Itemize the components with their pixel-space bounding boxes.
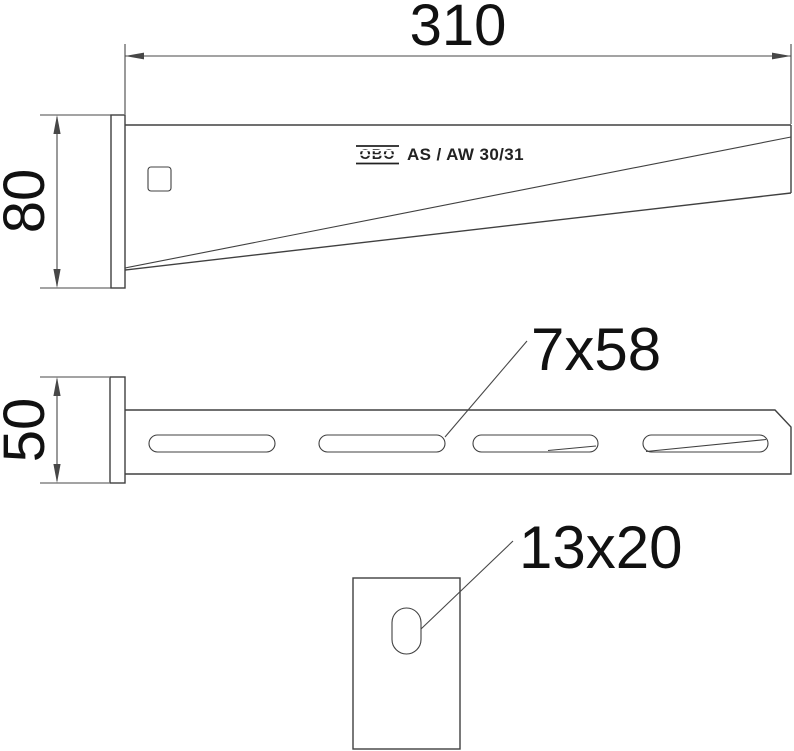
square-hole <box>148 167 171 191</box>
wall-plate-plan <box>110 377 125 483</box>
mounting-slot <box>319 435 445 452</box>
bracket-drawing: 310 80 OBO <box>0 0 794 751</box>
product-label: OBO AS / AW 30/31 <box>356 145 524 164</box>
dim-50-label: 50 <box>0 398 57 463</box>
slot-see-through-line <box>548 446 596 451</box>
slot-see-through-line <box>646 440 766 452</box>
arrowhead-down-icon <box>53 464 60 483</box>
end-plate-outline <box>353 578 460 749</box>
leader-line <box>445 341 527 437</box>
arrowhead-up-icon <box>53 115 60 134</box>
wall-plate-side <box>111 115 125 288</box>
dimension-310: 310 <box>125 0 791 124</box>
leader-line <box>421 541 513 629</box>
end-plate-view: 13x20 <box>353 514 682 749</box>
hole-dimension-label: 13x20 <box>519 514 682 581</box>
oblong-hole <box>392 608 421 654</box>
slot-callout: 7x58 <box>445 316 661 437</box>
obo-logo: OBO <box>356 146 399 164</box>
dimension-80: 80 <box>0 115 111 288</box>
side-view: 310 80 OBO <box>0 0 791 288</box>
bracket-side-outline <box>111 115 791 288</box>
dimension-50: 50 <box>0 377 109 483</box>
mounting-slot <box>473 435 598 452</box>
dim-80-label: 80 <box>0 169 57 234</box>
slot-dimension-label: 7x58 <box>531 316 661 383</box>
arrowhead-left-icon <box>125 53 144 60</box>
technical-drawing-page: 310 80 OBO <box>0 0 794 751</box>
plan-view: 50 7x58 <box>0 316 791 483</box>
arm-bottom-edge <box>125 193 791 270</box>
arrowhead-up-icon <box>53 377 60 396</box>
dim-310-label: 310 <box>410 0 507 58</box>
product-model-label: AS / AW 30/31 <box>407 145 524 164</box>
arrowhead-down-icon <box>53 269 60 288</box>
mounting-slot <box>149 435 275 452</box>
arm-plan-edge <box>125 410 791 474</box>
arrowhead-right-icon <box>772 53 791 60</box>
